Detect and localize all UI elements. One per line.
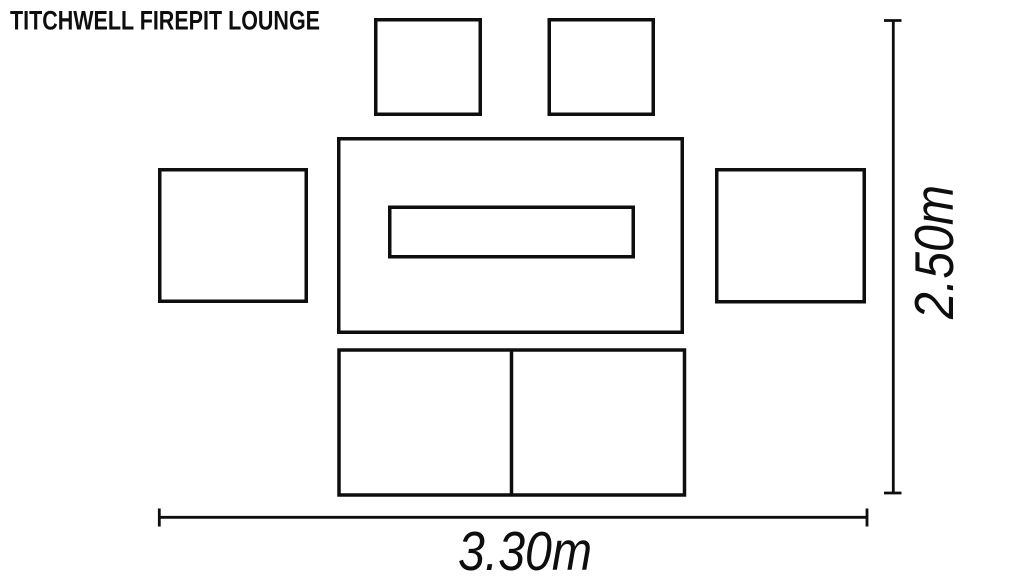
svg-text:3.30m: 3.30m [458, 520, 592, 576]
svg-text:2.50m: 2.50m [903, 185, 965, 320]
svg-text:TITCHWELL FIREPIT LOUNGE: TITCHWELL FIREPIT LOUNGE [10, 5, 320, 35]
